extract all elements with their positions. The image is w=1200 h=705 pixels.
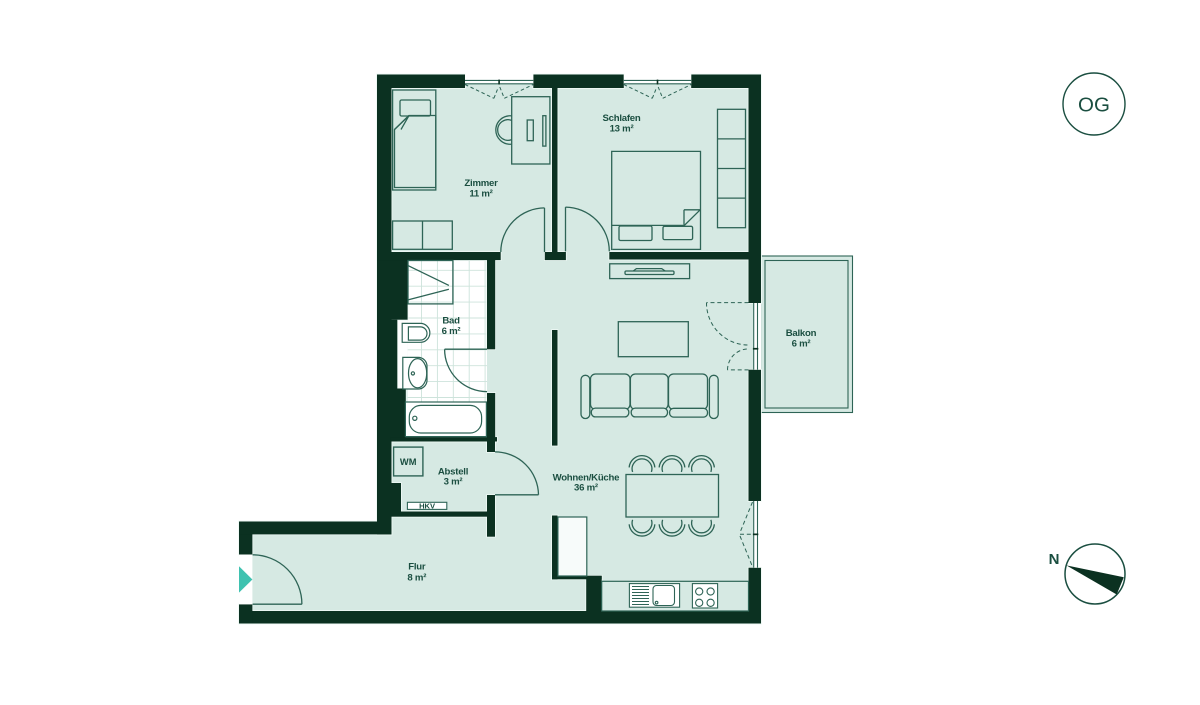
svg-text:N: N (1049, 551, 1060, 568)
svg-text:Bad: Bad (442, 316, 460, 327)
svg-text:13 m²: 13 m² (610, 123, 634, 134)
svg-text:3 m²: 3 m² (444, 476, 463, 487)
svg-text:6 m²: 6 m² (792, 339, 811, 350)
svg-text:Flur: Flur (408, 562, 426, 573)
svg-text:36 m²: 36 m² (574, 483, 598, 494)
svg-text:8 m²: 8 m² (407, 572, 426, 583)
svg-text:WM: WM (400, 457, 417, 467)
svg-text:11 m²: 11 m² (469, 188, 492, 199)
svg-text:HKV: HKV (419, 501, 436, 510)
svg-text:Balkon: Balkon (786, 328, 817, 339)
svg-text:6 m²: 6 m² (442, 326, 461, 337)
svg-text:OG: OG (1078, 93, 1110, 116)
